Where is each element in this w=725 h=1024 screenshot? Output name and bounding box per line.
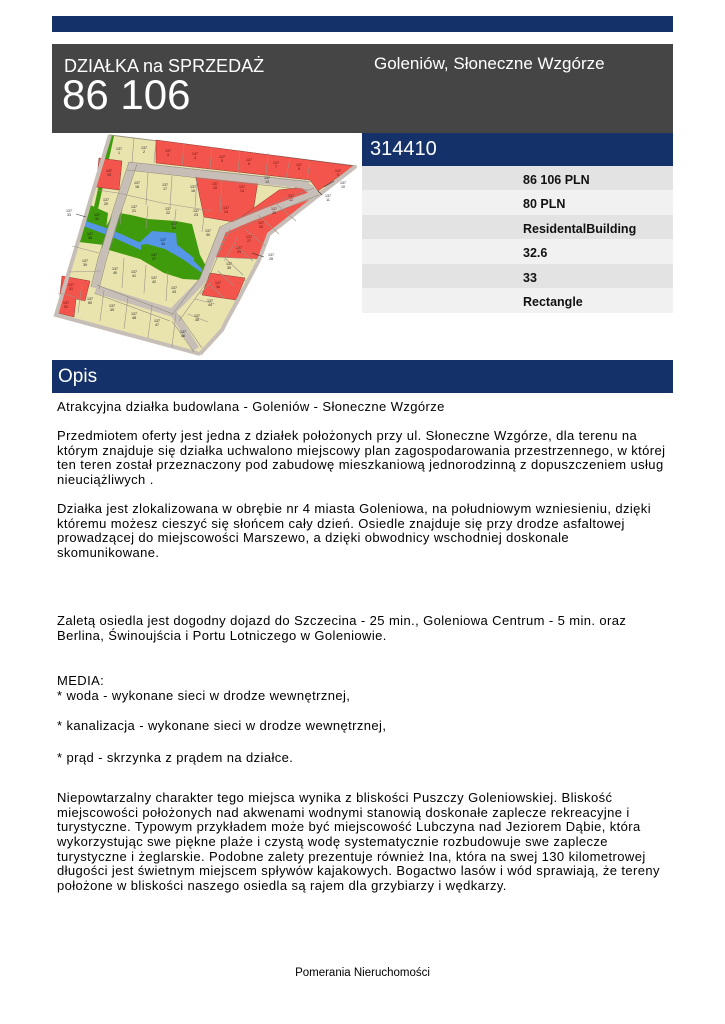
svg-text:33: 33 [67, 213, 71, 217]
svg-text:26: 26 [259, 225, 263, 229]
svg-text:18: 18 [135, 185, 139, 189]
svg-text:35: 35 [227, 266, 231, 270]
svg-text:42: 42 [152, 280, 156, 284]
svg-text:9: 9 [337, 173, 339, 177]
svg-text:22: 22 [166, 211, 170, 215]
svg-text:27: 27 [247, 239, 251, 243]
svg-text:13: 13 [265, 180, 269, 184]
svg-text:15: 15 [213, 186, 217, 190]
svg-text:30: 30 [206, 233, 210, 237]
svg-text:4: 4 [194, 156, 196, 160]
svg-text:16: 16 [191, 189, 195, 193]
svg-text:46: 46 [181, 334, 185, 338]
svg-text:20: 20 [104, 202, 108, 206]
svg-text:12: 12 [289, 198, 293, 202]
svg-text:19: 19 [107, 173, 111, 177]
svg-text:38: 38 [88, 236, 92, 240]
svg-text:10: 10 [341, 185, 345, 189]
svg-text:48: 48 [132, 316, 136, 320]
svg-text:11: 11 [326, 198, 330, 202]
svg-text:1: 1 [118, 151, 120, 155]
svg-text:25: 25 [272, 211, 276, 215]
svg-text:24: 24 [224, 210, 228, 214]
svg-text:44: 44 [208, 303, 212, 307]
svg-text:29: 29 [237, 250, 241, 254]
svg-text:45: 45 [195, 318, 199, 322]
svg-text:37: 37 [152, 257, 156, 261]
svg-text:23: 23 [194, 213, 198, 217]
svg-text:21: 21 [132, 209, 136, 213]
svg-text:6: 6 [248, 162, 250, 166]
svg-text:31: 31 [172, 226, 176, 230]
svg-text:28: 28 [269, 257, 273, 261]
svg-text:17: 17 [163, 187, 167, 191]
svg-text:2: 2 [143, 150, 145, 154]
svg-text:7: 7 [275, 165, 277, 169]
svg-text:32: 32 [95, 217, 99, 221]
svg-text:50: 50 [88, 301, 92, 305]
svg-text:8: 8 [298, 167, 300, 171]
svg-text:3: 3 [167, 153, 169, 157]
svg-text:34: 34 [161, 242, 165, 246]
svg-text:36: 36 [216, 285, 220, 289]
svg-text:41: 41 [132, 274, 136, 278]
svg-text:47: 47 [155, 323, 159, 327]
svg-text:52: 52 [64, 305, 68, 309]
svg-text:14: 14 [240, 189, 244, 193]
svg-text:40: 40 [113, 271, 117, 275]
svg-text:49: 49 [110, 308, 114, 312]
svg-text:51: 51 [69, 287, 73, 291]
svg-text:5: 5 [221, 159, 223, 163]
svg-text:43: 43 [172, 290, 176, 294]
svg-text:39: 39 [83, 263, 87, 267]
